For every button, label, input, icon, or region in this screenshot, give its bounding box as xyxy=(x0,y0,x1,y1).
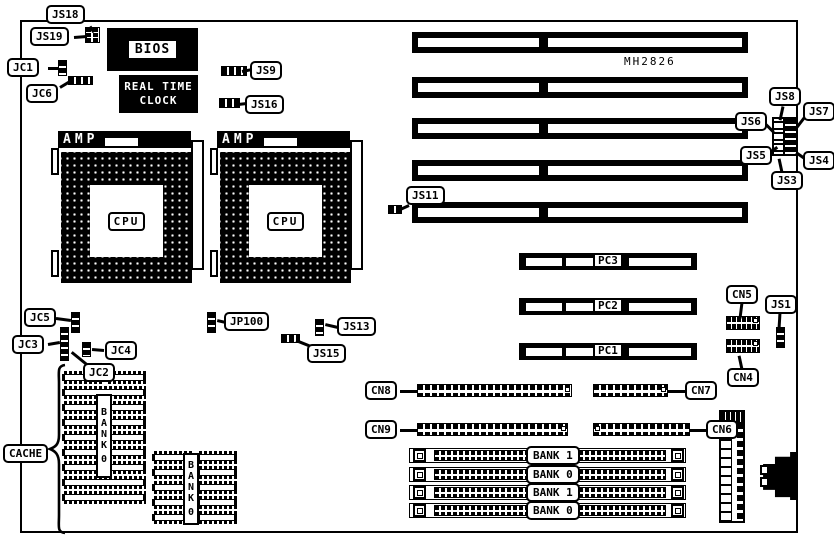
pci-slot-pc1: PC1 xyxy=(519,343,697,360)
pci-slot-pc3: PC3 xyxy=(519,253,697,270)
isa-slot-2-contact-a xyxy=(418,83,539,92)
isa-slot-5-contact-a xyxy=(418,208,539,217)
cn5-connector-key xyxy=(753,318,758,323)
cn8-connector xyxy=(417,384,572,397)
cache-bank-label-char: N xyxy=(188,482,194,493)
pci-contact-a xyxy=(526,348,562,356)
cn7-connector xyxy=(593,384,668,397)
pointer-line-jc1 xyxy=(48,67,59,70)
cpu-socket-1-amp-window xyxy=(105,138,138,146)
pci-contact-c xyxy=(629,303,691,311)
pointer-line-cn8 xyxy=(400,390,418,393)
simm-bank-label: BANK 1 xyxy=(526,483,580,502)
cache-bank-label-char: N xyxy=(101,429,107,440)
jc3-jumper xyxy=(60,327,69,361)
pci-contact-b xyxy=(566,258,593,266)
js3-js8-block-pins-right xyxy=(785,119,796,154)
callout-js19: JS19 xyxy=(30,27,69,46)
cn8-connector-key xyxy=(565,387,570,392)
jp100-jumper xyxy=(207,312,216,333)
simm-slot-1: BANK 1 xyxy=(409,448,686,463)
cache-bank-1-label: BANK0 xyxy=(96,394,112,478)
pci-contact-c xyxy=(629,348,691,356)
cache-chip-body xyxy=(65,450,99,455)
cache-chip-body xyxy=(109,450,143,455)
js3-js8-block xyxy=(772,117,798,156)
simm-slot-3: BANK 1 xyxy=(409,485,686,500)
isa-slot-4 xyxy=(412,160,748,181)
cache-chip xyxy=(106,416,146,429)
cpu-socket-1-die-area: CPU xyxy=(90,185,163,257)
pci-contact-c xyxy=(629,258,691,266)
simm-slot-clip-right xyxy=(671,486,684,499)
pci-slot-pc2: PC2 xyxy=(519,298,697,315)
isa-slot-1-contact-a xyxy=(418,38,539,47)
callout-cn5: CN5 xyxy=(726,285,758,304)
cn7-connector-key xyxy=(661,387,666,392)
callout-js16: JS16 xyxy=(245,95,284,114)
cache-chip xyxy=(106,446,146,459)
callout-jc3: JC3 xyxy=(12,335,44,354)
callout-js15: JS15 xyxy=(307,344,346,363)
cache-chip-body xyxy=(200,515,235,520)
cache-bank-label-char: B xyxy=(188,460,194,471)
jc1-jumper xyxy=(58,60,67,76)
cache-chip-body xyxy=(200,470,235,475)
cache-chip-body xyxy=(200,485,235,490)
cache-chip xyxy=(197,496,238,509)
cpu-socket-2-tab-top xyxy=(210,148,218,175)
cache-bank-label-char: 0 xyxy=(101,454,107,465)
cpu-socket-2-amp-brand: AMP xyxy=(222,132,257,149)
cache-chip-body xyxy=(65,495,143,500)
callout-js6: JS6 xyxy=(735,112,767,131)
cpu-socket-1-cpu-label: CPU xyxy=(108,212,146,231)
callout-js18: JS18 xyxy=(46,5,85,24)
callout-js7: JS7 xyxy=(803,102,834,121)
callout-js13: JS13 xyxy=(337,317,376,336)
cache-bank-label-char: 0 xyxy=(188,507,194,518)
cpu-socket-1-tab-top xyxy=(51,148,59,175)
motherboard-diagram: BIOS REAL TIME CLOCK MH2826 JS18JS19JC1J… xyxy=(0,0,834,540)
simm-bank-label: BANK 1 xyxy=(526,446,580,465)
bios-chip: BIOS xyxy=(107,28,198,71)
cn5-connector xyxy=(726,316,760,330)
cache-chip-body xyxy=(200,500,235,505)
cpu-socket-1-tab-bottom xyxy=(51,250,59,277)
isa-slot-1 xyxy=(412,32,748,53)
cache-chip-body xyxy=(200,455,235,460)
simm-slot-clip-left xyxy=(413,468,426,481)
callout-jc4: JC4 xyxy=(105,341,137,360)
cache-bank-1-chip-row xyxy=(62,491,146,504)
cn9-connector-key xyxy=(561,426,566,431)
isa-slot-5-contact-b xyxy=(548,208,742,217)
cn4-connector-key xyxy=(753,341,758,346)
isa-slot-2-contact-b xyxy=(548,83,742,92)
jc5-jumper xyxy=(71,312,80,333)
cpu-socket-2-tab-bottom xyxy=(210,250,218,277)
cache-bank-label-char: B xyxy=(101,407,107,418)
cache-bank-label-char: A xyxy=(188,471,194,482)
keyboard-connector-pin-top xyxy=(760,465,769,475)
pci-contact-a xyxy=(526,303,562,311)
pci-contact-b xyxy=(566,303,593,311)
cache-chip xyxy=(197,451,238,464)
cache-chip-body xyxy=(65,420,99,425)
cache-chip-body xyxy=(65,480,143,485)
cache-chip-body xyxy=(109,405,143,410)
callout-js1: JS1 xyxy=(765,295,797,314)
board-model-text: MH2826 xyxy=(624,55,676,68)
cache-chip-body xyxy=(109,420,143,425)
simm-slot-clip-right xyxy=(671,468,684,481)
cpu-socket-1-amp-brand: AMP xyxy=(63,132,98,149)
real-time-clock-chip: REAL TIME CLOCK xyxy=(119,75,198,113)
cache-chip xyxy=(106,401,146,414)
pci-contact-a xyxy=(526,258,562,266)
simm-slot-clip-left xyxy=(413,449,426,462)
cache-chip xyxy=(106,461,146,474)
cache-chip xyxy=(197,466,238,479)
cache-bank-label-char: K xyxy=(101,440,107,451)
pointer-line-cn6 xyxy=(689,429,707,432)
cache-chip xyxy=(106,431,146,444)
rtc-label-line2: CLOCK xyxy=(139,94,177,108)
cache-chip xyxy=(197,511,238,524)
simm-slot-clip-right xyxy=(671,449,684,462)
cache-chip-body xyxy=(109,465,143,470)
cpu-socket-1-amp-header: AMP xyxy=(58,131,191,148)
cn6-connector xyxy=(593,423,690,436)
pointer-line-cn9 xyxy=(400,429,418,432)
callout-jp100: JP100 xyxy=(224,312,269,331)
isa-slot-2 xyxy=(412,77,748,98)
js1-jumper xyxy=(776,327,785,348)
isa-slot-3 xyxy=(412,118,748,139)
simm-slot-clip-right xyxy=(671,504,684,517)
cache-brace xyxy=(48,363,68,535)
cn6-connector-key xyxy=(595,426,600,431)
cache-chip-body xyxy=(65,465,99,470)
bios-label: BIOS xyxy=(128,40,177,59)
cache-chip xyxy=(62,491,146,504)
cache-chip-body xyxy=(109,435,143,440)
jc6-jumper xyxy=(68,76,93,85)
callout-js11: JS11 xyxy=(406,186,445,205)
callout-cn8: CN8 xyxy=(365,381,397,400)
rtc-label-line1: REAL TIME xyxy=(124,80,193,94)
simm-bank-label: BANK 0 xyxy=(526,465,580,484)
callout-jc5: JC5 xyxy=(24,308,56,327)
pci-slot-label-pc3: PC3 xyxy=(593,253,623,268)
cpu-socket-2-amp-header: AMP xyxy=(217,131,350,148)
callout-jc2: JC2 xyxy=(83,363,115,382)
simm-slot-2: BANK 0 xyxy=(409,467,686,482)
isa-slot-3-contact-b xyxy=(548,124,742,133)
pci-slot-label-pc1: PC1 xyxy=(593,343,623,358)
isa-slot-5 xyxy=(412,202,748,223)
cpu-socket-1-pin-grid: CPU xyxy=(61,152,192,283)
callout-cn4: CN4 xyxy=(727,368,759,387)
isa-slot-4-contact-a xyxy=(418,166,539,175)
simm-slot-clip-left xyxy=(413,504,426,517)
cn9-connector xyxy=(417,423,568,436)
cpu-socket-2-die-area: CPU xyxy=(249,185,322,257)
simm-bank-label: BANK 0 xyxy=(526,501,580,520)
isa-slot-1-contact-b xyxy=(548,38,742,47)
callout-js5: JS5 xyxy=(740,146,772,165)
callout-cache: CACHE xyxy=(3,444,48,463)
callout-jc1: JC1 xyxy=(7,58,39,77)
isa-slot-4-contact-b xyxy=(548,166,742,175)
jc4-jumper xyxy=(82,342,91,357)
pci-contact-b xyxy=(566,348,593,356)
callout-js9: JS9 xyxy=(250,61,282,80)
cpu-socket-2-amp-window xyxy=(264,138,297,146)
pci-slot-label-pc2: PC2 xyxy=(593,298,623,313)
cpu-socket-2-pin-grid: CPU xyxy=(220,152,351,283)
cache-bank-label-char: A xyxy=(101,418,107,429)
cache-chip-body xyxy=(65,435,99,440)
cache-chip-body xyxy=(65,405,99,410)
cpu-socket-1-lever xyxy=(191,140,204,270)
callout-cn9: CN9 xyxy=(365,420,397,439)
cache-bank-label-char: K xyxy=(188,493,194,504)
keyboard-connector-pin-bottom xyxy=(760,477,769,487)
callout-js8: JS8 xyxy=(769,87,801,106)
cn4-connector xyxy=(726,339,760,353)
cpu-socket-2-lever xyxy=(350,140,363,270)
callout-cn6: CN6 xyxy=(706,420,738,439)
pointer-line-cn7 xyxy=(667,390,686,393)
js13-jumper xyxy=(315,319,324,336)
cache-chip xyxy=(197,481,238,494)
cache-bank-2-label: BANK0 xyxy=(183,453,199,525)
callout-js3: JS3 xyxy=(771,171,803,190)
callout-jc6: JC6 xyxy=(26,84,58,103)
cpu-socket-2-cpu-label: CPU xyxy=(267,212,305,231)
callout-js4: JS4 xyxy=(803,151,834,170)
isa-slot-3-contact-a xyxy=(418,124,539,133)
simm-slot-clip-left xyxy=(413,486,426,499)
simm-slot-4: BANK 0 xyxy=(409,503,686,518)
callout-cn7: CN7 xyxy=(685,381,717,400)
